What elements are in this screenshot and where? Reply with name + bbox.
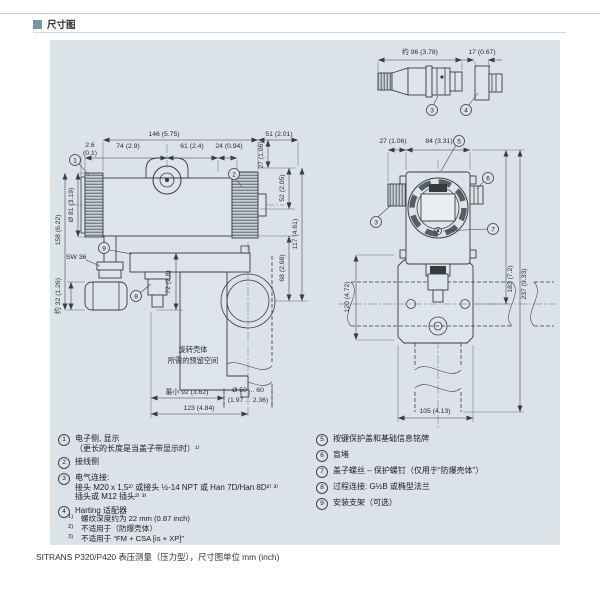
footnote-text: 不适用于（防爆壳体） — [81, 524, 157, 534]
rotation-note-line1: 旋转壳体 — [179, 345, 208, 354]
legend-item: 3 电气连接: 接头 M20 x 1,5²⁾ 或接头 ½-14 NPT 或 Ha… — [58, 473, 312, 502]
legend-left: 1 电子侧, 显示 （更长的长度是当盖子带显示时）¹⁾ 2 接线侧 3 电气连接… — [58, 434, 312, 522]
svg-text:3: 3 — [374, 219, 378, 226]
legend-item: 2 接线侧 — [58, 457, 312, 469]
legend-text: 按键保护盖和基础信息铭牌 — [333, 434, 429, 444]
svg-text:4: 4 — [464, 107, 468, 114]
callout-3: 3 — [371, 205, 392, 228]
dim-label: (0.1) — [83, 150, 97, 157]
rotation-note-line2: 所需的预留空间 — [168, 356, 218, 365]
drawing-front-view: 27 (1.06) 84 (3.31) 120 (4.72) 183 (7.2)… — [338, 134, 558, 434]
dim-label: 2.6 — [85, 142, 95, 149]
dim-label: 237 (9.33) — [521, 269, 528, 300]
housing-front — [388, 172, 483, 276]
dim-label: 52 (2.05) — [279, 174, 286, 201]
legend-line: 盲堵 — [333, 450, 349, 460]
harting-connector — [378, 66, 462, 97]
dim-label: 72 (2.8) — [165, 270, 172, 293]
callout-number: 5 — [316, 434, 328, 446]
footnote-marker: 1) — [68, 513, 76, 523]
legend-text: 过程连接: G½B 或椭型法兰 — [333, 482, 430, 492]
legend-line: 接头 M20 x 1,5²⁾ 或接头 ½-14 NPT 或 Han 7D/Han… — [75, 483, 278, 493]
legend-line: 安装支架（可选） — [333, 498, 397, 508]
dim-label: 117 (4.61) — [292, 219, 299, 249]
section-bullet-icon — [33, 20, 42, 29]
legend-text: 盖子螺丝 – 保护螺钉（仅用于“防爆壳体”） — [333, 466, 483, 476]
dim-label: 51 (2.01) — [265, 131, 292, 138]
footnote-text: 不适用于 “FM + CSA [is + XP]” — [81, 534, 184, 544]
legend-item: 8 过程连接: G½B 或椭型法兰 — [316, 482, 556, 494]
section-header: 尺寸图 — [33, 17, 76, 31]
dim-label: SW 36 — [66, 254, 87, 261]
legend-line: 电气连接: — [75, 473, 278, 483]
callout-number: 3 — [58, 473, 70, 485]
callout-number: 9 — [316, 498, 328, 510]
legend-line: 插头或 M12 插头²⁾ ³⁾ — [75, 492, 278, 502]
header-divider — [33, 32, 566, 33]
callout-number: 8 — [316, 482, 328, 494]
drawing-side-view: 146 (5.75) 51 (2.01) 2.6 (0.1) 74 (2.9) … — [52, 126, 334, 428]
footnote: 3) 不适用于 “FM + CSA [is + XP]” — [68, 534, 190, 544]
legend-line: 盖子螺丝 – 保护螺钉（仅用于“防爆壳体”） — [333, 466, 483, 476]
dim-label: 84 (3.31) — [425, 138, 452, 145]
dim-label: 183 (7.2) — [507, 265, 514, 292]
legend-line: 接线侧 — [75, 457, 99, 467]
footnote-text: 螺纹深度约为 22 mm (0.87 inch) — [81, 514, 190, 524]
mounting-bracket — [130, 246, 250, 397]
legend-text: 盲堵 — [333, 450, 349, 460]
dim-label: 最小 92 (3.62) — [166, 387, 209, 396]
dim-label: 24 (0.94) — [215, 143, 242, 150]
legend-line: 按键保护盖和基础信息铭牌 — [333, 434, 429, 444]
dim-label: 146 (5.75) — [149, 131, 180, 138]
svg-text:9: 9 — [102, 245, 106, 252]
callout-number: 1 — [58, 434, 70, 446]
legend-text: 电气连接: 接头 M20 x 1,5²⁾ 或接头 ½-14 NPT 或 Han … — [75, 473, 278, 502]
dim-label: Ø 50 ... 60 — [232, 387, 264, 394]
callout-3: 3 — [427, 96, 439, 116]
svg-text:7: 7 — [491, 226, 495, 233]
dim-label: 123 (4.84) — [184, 405, 215, 412]
svg-text:8: 8 — [134, 293, 138, 300]
svg-text:2: 2 — [232, 171, 236, 178]
dim-label: Ø 81 (3.19) — [68, 188, 75, 222]
callout-number: 7 — [316, 466, 328, 478]
section-title: 尺寸图 — [47, 17, 76, 31]
svg-text:6: 6 — [486, 175, 490, 182]
dim-label: 27 (1.06) — [258, 141, 265, 168]
callout-number: 6 — [316, 450, 328, 462]
callout-1: 1 — [70, 155, 90, 176]
svg-text:5: 5 — [457, 138, 461, 145]
drawing-connector: 约 96 (3.78) 17 (0.67) — [362, 46, 560, 128]
dim-label: 61 (2.4) — [180, 143, 203, 150]
dimension-figure-panel: 146 (5.75) 51 (2.01) 2.6 (0.1) 74 (2.9) … — [50, 40, 560, 545]
adapter — [475, 66, 502, 100]
legend-item: 9 安装支架（可选） — [316, 498, 556, 510]
callout-6: 6 — [477, 173, 494, 190]
dim-label: 27 (1.06) — [379, 138, 406, 145]
callout-number: 2 — [58, 457, 70, 469]
top-divider — [0, 13, 600, 14]
figure-caption: SITRANS P320/P420 表压测量（压力型），尺寸图单位 mm (in… — [36, 551, 279, 563]
dim-label: 68 (2.68) — [279, 254, 286, 281]
legend-line: 过程连接: G½B 或椭型法兰 — [333, 482, 430, 492]
dim-label: 120 (4.72) — [344, 282, 351, 313]
footnote: 1) 螺纹深度约为 22 mm (0.87 inch) — [68, 514, 190, 524]
dim-label: 74 (2.9) — [116, 143, 139, 150]
legend-item: 1 电子侧, 显示 （更长的长度是当盖子带显示时）¹⁾ — [58, 434, 312, 453]
dim-label: (1.97 ... 2.36) — [228, 397, 268, 404]
dim-label: 约 32 (1.26) — [53, 278, 62, 314]
dim-label: 17 (0.67) — [468, 49, 495, 56]
legend-item: 7 盖子螺丝 – 保护螺钉（仅用于“防爆壳体”） — [316, 466, 556, 478]
footnote: 2) 不适用于（防爆壳体） — [68, 524, 190, 534]
dim-label: 158 (6.22) — [55, 215, 62, 246]
footnote-marker: 2) — [68, 523, 76, 533]
svg-text:1: 1 — [73, 157, 77, 164]
legend-item: 5 按键保护盖和基础信息铭牌 — [316, 434, 556, 446]
legend-text: 电子侧, 显示 （更长的长度是当盖子带显示时）¹⁾ — [75, 434, 200, 453]
callout-4: 4 — [461, 93, 479, 116]
process-connection-side — [85, 262, 127, 310]
legend-text: 接线侧 — [75, 457, 99, 467]
legend-line: （更长的长度是当盖子带显示时）¹⁾ — [75, 444, 200, 454]
footnotes: 1) 螺纹深度约为 22 mm (0.87 inch) 2) 不适用于（防爆壳体… — [68, 514, 190, 543]
dim-label: 105 (4.13) — [420, 408, 451, 415]
legend-line: 电子侧, 显示 — [75, 434, 200, 444]
dim-label: 约 96 (3.78) — [402, 47, 438, 56]
legend-text: 安装支架（可选） — [333, 498, 397, 508]
legend-item: 6 盲堵 — [316, 450, 556, 462]
legend-right: 5 按键保护盖和基础信息铭牌 6 盲堵 7 盖子螺丝 – 保护螺钉（仅用于“防爆… — [316, 434, 556, 514]
footnote-marker: 3) — [68, 533, 76, 543]
svg-text:3: 3 — [430, 107, 434, 114]
